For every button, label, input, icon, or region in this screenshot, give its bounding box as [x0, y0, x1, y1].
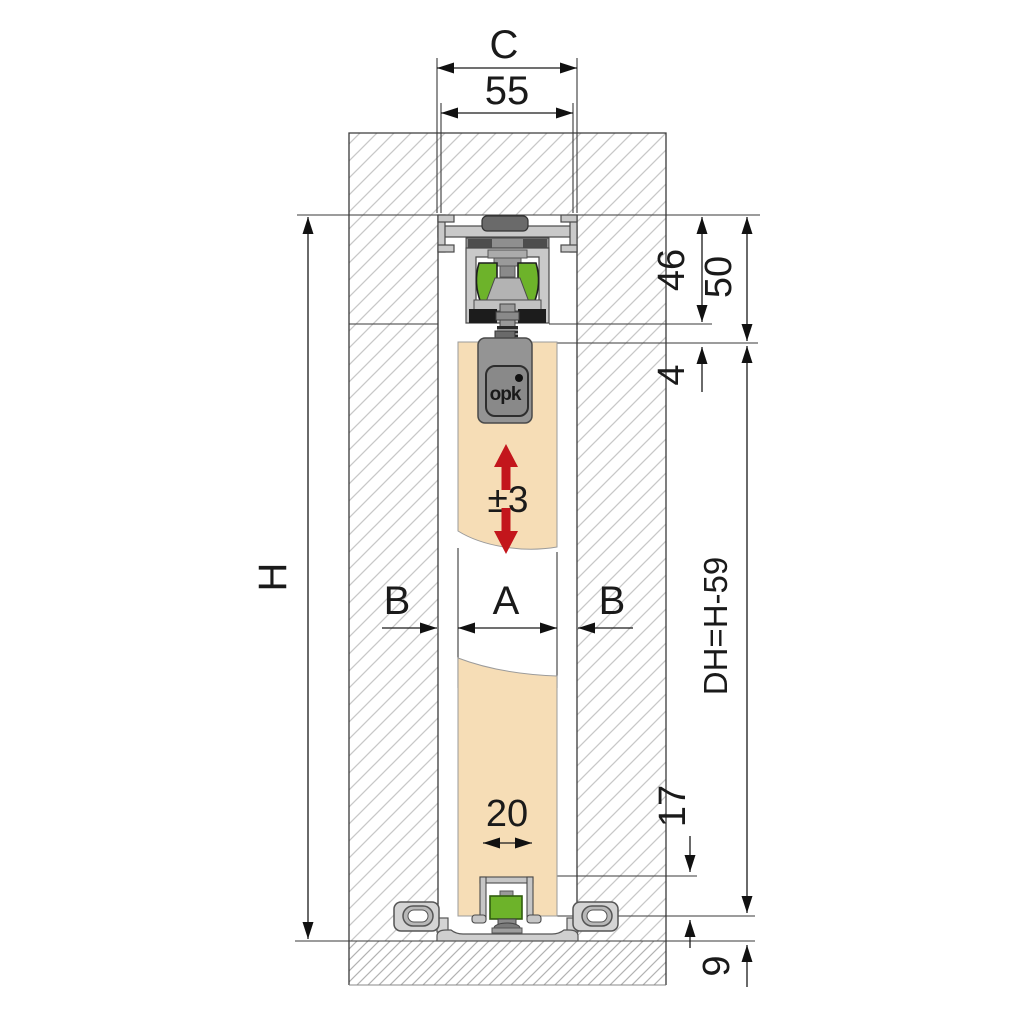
channel-wall-left — [480, 877, 486, 919]
suspension-bolt-stem — [500, 266, 515, 277]
damper-left — [469, 309, 497, 323]
dim-label-9: 9 — [696, 955, 738, 976]
dim-50: 50 — [698, 217, 747, 341]
roller-carriage — [466, 248, 549, 328]
dim-label-b-right: B — [599, 579, 626, 623]
dim-label-50: 50 — [698, 256, 740, 298]
dim-label-46: 46 — [651, 249, 693, 291]
guide-bolt-base — [492, 928, 522, 933]
suspension-bolt-top — [488, 250, 527, 258]
tab-slot-hole-left — [408, 910, 428, 922]
logo-dot — [515, 374, 523, 382]
wall-header — [349, 133, 666, 215]
mounting-tab-right — [567, 902, 618, 932]
diagram-canvas: opk ±3 — [0, 0, 1024, 1024]
dim-h: H — [251, 217, 308, 939]
carriage-nut — [496, 312, 519, 320]
hanger-block-right — [523, 239, 547, 248]
hanger-block-left — [468, 239, 492, 248]
channel-top — [480, 877, 533, 883]
floor-slab — [349, 941, 666, 985]
dim-label-20: 20 — [486, 793, 528, 835]
channel-foot-left — [472, 915, 486, 923]
dim-label-dh: DH=H-59 — [697, 557, 734, 695]
guide-roller — [490, 896, 522, 919]
track-mount-cap — [482, 216, 528, 231]
dim-dh: DH=H-59 — [697, 346, 747, 913]
top-track-assembly — [438, 215, 577, 341]
dim-label-55: 55 — [485, 69, 530, 113]
dim-label-c: C — [490, 23, 519, 67]
hanger-bracket: opk — [478, 331, 532, 423]
dim-label-h: H — [251, 563, 295, 592]
logo-text: opk — [490, 384, 522, 405]
channel-wall-right — [527, 877, 533, 919]
dim-label-b-left: B — [384, 579, 411, 623]
channel-foot-right — [527, 915, 541, 923]
dim-c: C — [437, 23, 577, 68]
suspension-bolt-mid — [494, 258, 521, 266]
mounting-tab-left — [394, 902, 448, 932]
track-flange-right-bottom — [561, 245, 577, 252]
dim-9: 9 — [696, 945, 747, 987]
dim-label-4: 4 — [651, 364, 693, 385]
dim-a: A — [458, 579, 557, 628]
track-flange-right-top — [561, 215, 577, 222]
dim-55: 55 — [441, 69, 573, 113]
track-flange-left-bottom — [438, 245, 454, 252]
damper-right — [518, 309, 546, 323]
track-flange-left-top — [438, 215, 454, 222]
dim-label-a: A — [493, 579, 520, 623]
dim-label-17: 17 — [652, 785, 694, 827]
tab-slot-hole-right — [587, 910, 607, 922]
